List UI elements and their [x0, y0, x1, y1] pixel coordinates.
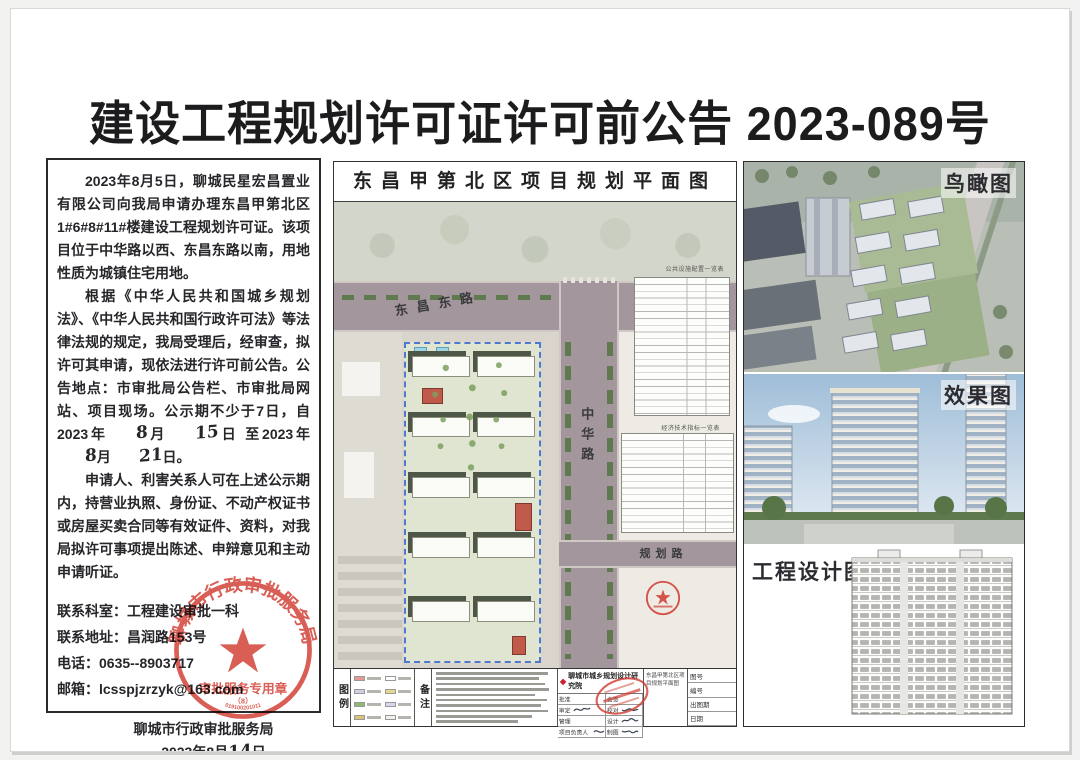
entrance-marker [436, 347, 449, 353]
stamp-star-icon [220, 628, 267, 673]
legend-label: 图例 [334, 669, 351, 726]
legend-swatches [351, 669, 415, 726]
notes-label: 备注 [415, 669, 432, 726]
notice-paragraph-3: 申请人、利害关系人可在上述公示期内，持营业执照、身份证、不动产权证书或房屋买卖合… [57, 469, 310, 584]
date-text: 2023年8月 [161, 744, 228, 752]
entrance-marker [414, 347, 427, 353]
titleblock-project-name: 东昌甲第北区项目规划平面图 [646, 673, 685, 687]
building-footprint [412, 417, 470, 438]
field-label: 图号 [688, 669, 736, 683]
scanned-notice-sheet: 建设工程规划许可证许可前公告 2023-089号 2023年8月5日，聊城民星宏… [10, 8, 1070, 752]
facility-building-red [512, 636, 525, 655]
p2-seg: 月 [148, 426, 168, 442]
institute-logo-icon: ◆ [560, 677, 566, 686]
building-footprint [412, 477, 470, 498]
facility-building-red [422, 388, 443, 404]
handwritten-day-to: 21 [111, 447, 163, 469]
signature-mark [593, 727, 605, 736]
field-label: 日期 [688, 712, 736, 726]
render-label: 效果图 [941, 380, 1016, 410]
signature-mark [621, 727, 639, 736]
birdseye-photo: 鸟瞰图 [744, 162, 1024, 374]
render-photo: 效果图 [744, 374, 1024, 546]
building-footprint [412, 537, 470, 558]
handwritten-month-from: 8 [108, 424, 148, 445]
elevation-drawing [848, 548, 1016, 718]
building-footprint [477, 601, 535, 622]
notice-paragraph-1: 2023年8月5日，聊城民星宏昌置业有限公司向我局申请办理东昌甲第北区1#6#8… [57, 170, 310, 285]
field-label: 出图期 [688, 698, 736, 712]
p2-seg: 日 至2023年 [219, 426, 310, 442]
site-plan-title: 东昌甲第北区项目规划平面图 [334, 162, 736, 202]
institute-oval-stamp-icon [593, 671, 651, 721]
planning-institute-seal-icon [644, 579, 682, 617]
parking-rows [338, 556, 402, 668]
zhonghua-road-label: 中华路 [577, 407, 596, 467]
p2-text: 根据《中华人民共和国城乡规划法》、《中华人民共和国行政许可法》等法律法规的规定，… [57, 288, 310, 442]
crosswalk-marking [563, 277, 615, 283]
birdseye-label: 鸟瞰图 [941, 168, 1016, 198]
building-footprint [477, 537, 535, 558]
facility-building-red [515, 503, 532, 532]
notice-text-box: 2023年8月5日，聊城民星宏昌置业有限公司向我局申请办理东昌甲第北区1#6#8… [46, 158, 321, 713]
date-text: 日 [252, 744, 266, 752]
facilities-table [634, 277, 730, 417]
drawing-number-fields: 图号编号出图期日期 [688, 669, 736, 726]
signature-mark [573, 705, 591, 714]
project-parcel [404, 342, 541, 664]
building-footprint [477, 477, 535, 498]
building-footprint [412, 356, 470, 377]
p2-seg: 日。 [163, 449, 191, 465]
handwritten-month-to: 8 [57, 447, 97, 468]
building-footprint [477, 417, 535, 438]
map-titleblock-strip: 图例 备注 ◆ 聊城市城乡规划设计研究院 [334, 668, 736, 726]
handwritten-day-from: 15 [167, 424, 219, 446]
planned-road-label: 规划路 [640, 545, 688, 561]
page-title: 建设工程规划许可证许可前公告 2023-089号 [11, 85, 1069, 153]
site-plan-drawing: 公共设施配置一览表 经济技术指标一览表 东昌东路 中华路 规划路 [334, 202, 736, 668]
p2-seg: 月 [97, 449, 111, 465]
building-footprint [412, 601, 470, 622]
notes-lines [432, 669, 558, 726]
indicators-table [621, 433, 734, 533]
handwritten-sign-day: 14 [228, 743, 252, 752]
field-label: 编号 [688, 683, 736, 697]
site-plan-panel: 东昌甲第北区项目规划平面图 [333, 161, 737, 727]
design-drawing-section: 工程设计图 [744, 546, 1024, 722]
issue-date: 2023年8月14日 [57, 741, 310, 752]
table2-caption: 经济技术指标一览表 [661, 423, 720, 432]
road-planter [565, 342, 571, 659]
road-planter [607, 342, 613, 659]
table1-caption: 公共设施配置一览表 [665, 264, 724, 273]
svg-text:审批服务专用章: 审批服务专用章 [199, 681, 288, 696]
project-name-cell: 东昌甲第北区项目规划平面图 [644, 669, 688, 726]
notice-paragraph-2: 根据《中华人民共和国城乡规划法》、《中华人民共和国行政许可法》等法律法规的规定，… [57, 285, 310, 469]
building-footprint [477, 356, 535, 377]
svg-text:（8）: （8） [233, 695, 252, 705]
agency-round-stamp-icon: 聊城市行政审批服务局 审批服务专用章 （8） 019100201011 [168, 575, 318, 725]
images-column: 鸟瞰图 [743, 161, 1025, 727]
